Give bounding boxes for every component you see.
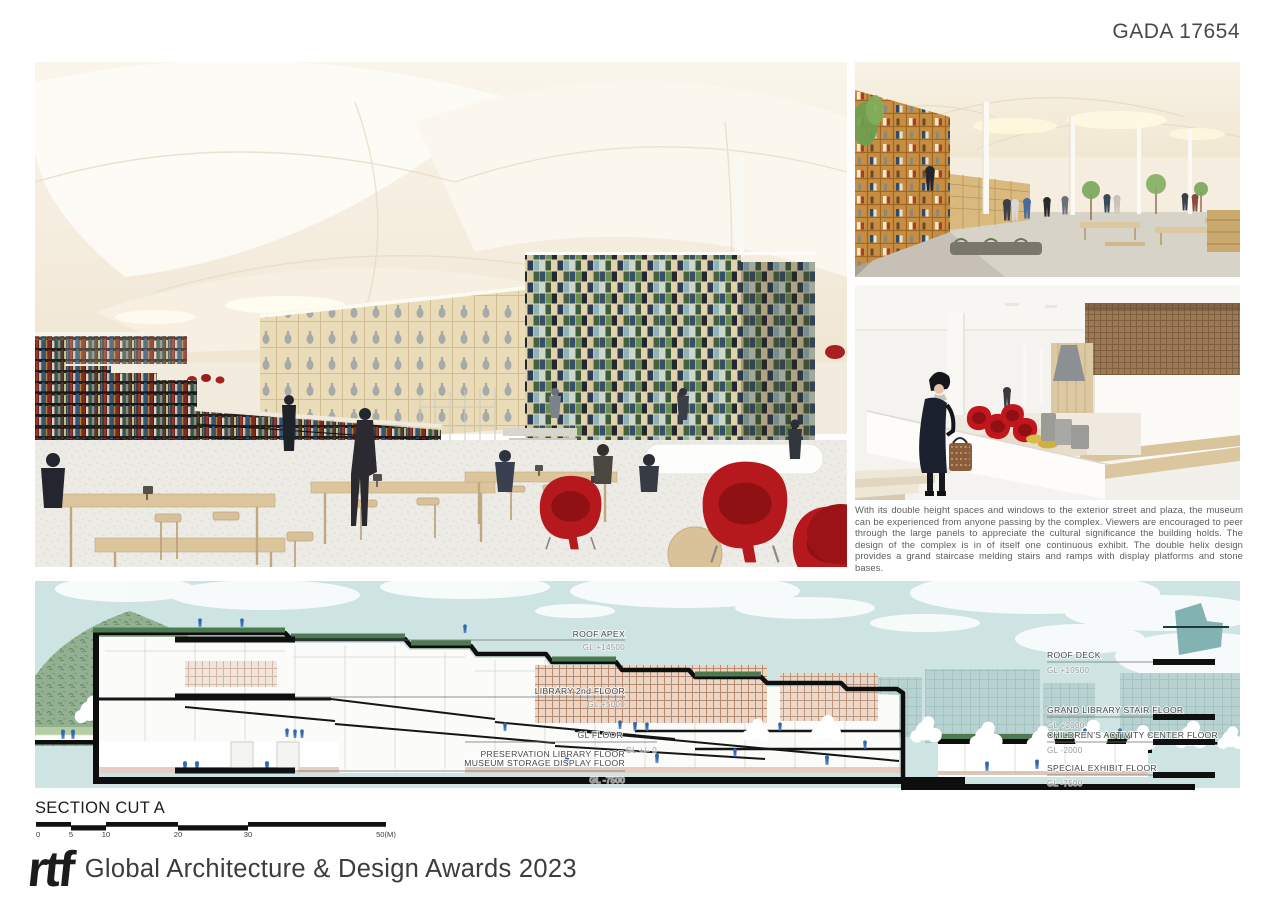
gl-grand-library-stair: GL +2000 [1047,721,1085,730]
scale-bar: 0 5 10 20 30 50(M) [36,820,396,838]
rtf-logo: rtf [26,847,74,891]
stair-gallery-rendering [855,285,1240,500]
project-description: With its double height spaces and window… [855,504,1243,573]
scale-tick-50m: 50(M) [376,830,396,838]
scale-tick-30: 30 [244,830,252,838]
label-roof-deck: ROOF DECK [1047,650,1101,660]
gl-preservation: GL -7500 [590,776,626,785]
gl-childrens-activity: GL -2000 [1047,746,1083,755]
label-gl-floor: GL FLOOR [577,730,623,740]
wood-brick-wall [1085,303,1240,375]
gl-library-2nd-floor: GL +5000 [588,700,626,709]
footer: rtf Global Architecture & Design Awards … [28,843,577,895]
label-childrens-activity: CHILDREN'S ACTIVITY CENTER FLOOR [1047,730,1218,740]
label-roof-apex: ROOF APEX [573,629,625,639]
gl-gl-floor: GL +/- 0 [626,746,657,755]
label-grand-library-stair: GRAND LIBRARY STAIR FLOOR [1047,705,1183,715]
section-title: SECTION CUT A [35,799,165,818]
gl-roof-apex: GL +14500 [583,643,625,652]
scale-tick-10: 10 [102,830,110,838]
building-section-drawing: ROOF APEX GL +14500 LIBRARY 2nd FLOOR GL… [35,581,1240,799]
gl-roof-deck: GL +10500 [1047,666,1089,675]
label-museum-storage: MUSEUM STORAGE DISPLAY FLOOR [464,758,625,768]
main-library-rendering [35,62,847,567]
label-library-2nd-floor: LIBRARY 2nd FLOOR [535,686,625,696]
scale-tick-5: 5 [69,830,73,838]
gl-special-exhibit: GL -7500 [1047,779,1083,788]
presentation-board: GADA 17654 [0,0,1273,900]
award-title: Global Architecture & Design Awards 2023 [85,855,577,884]
scale-tick-0: 0 [36,830,40,838]
scale-tick-20: 20 [174,830,182,838]
label-special-exhibit: SPECIAL EXHIBIT FLOOR [1047,763,1157,773]
board-id: GADA 17654 [1112,20,1240,44]
reading-hall-rendering [855,62,1240,277]
